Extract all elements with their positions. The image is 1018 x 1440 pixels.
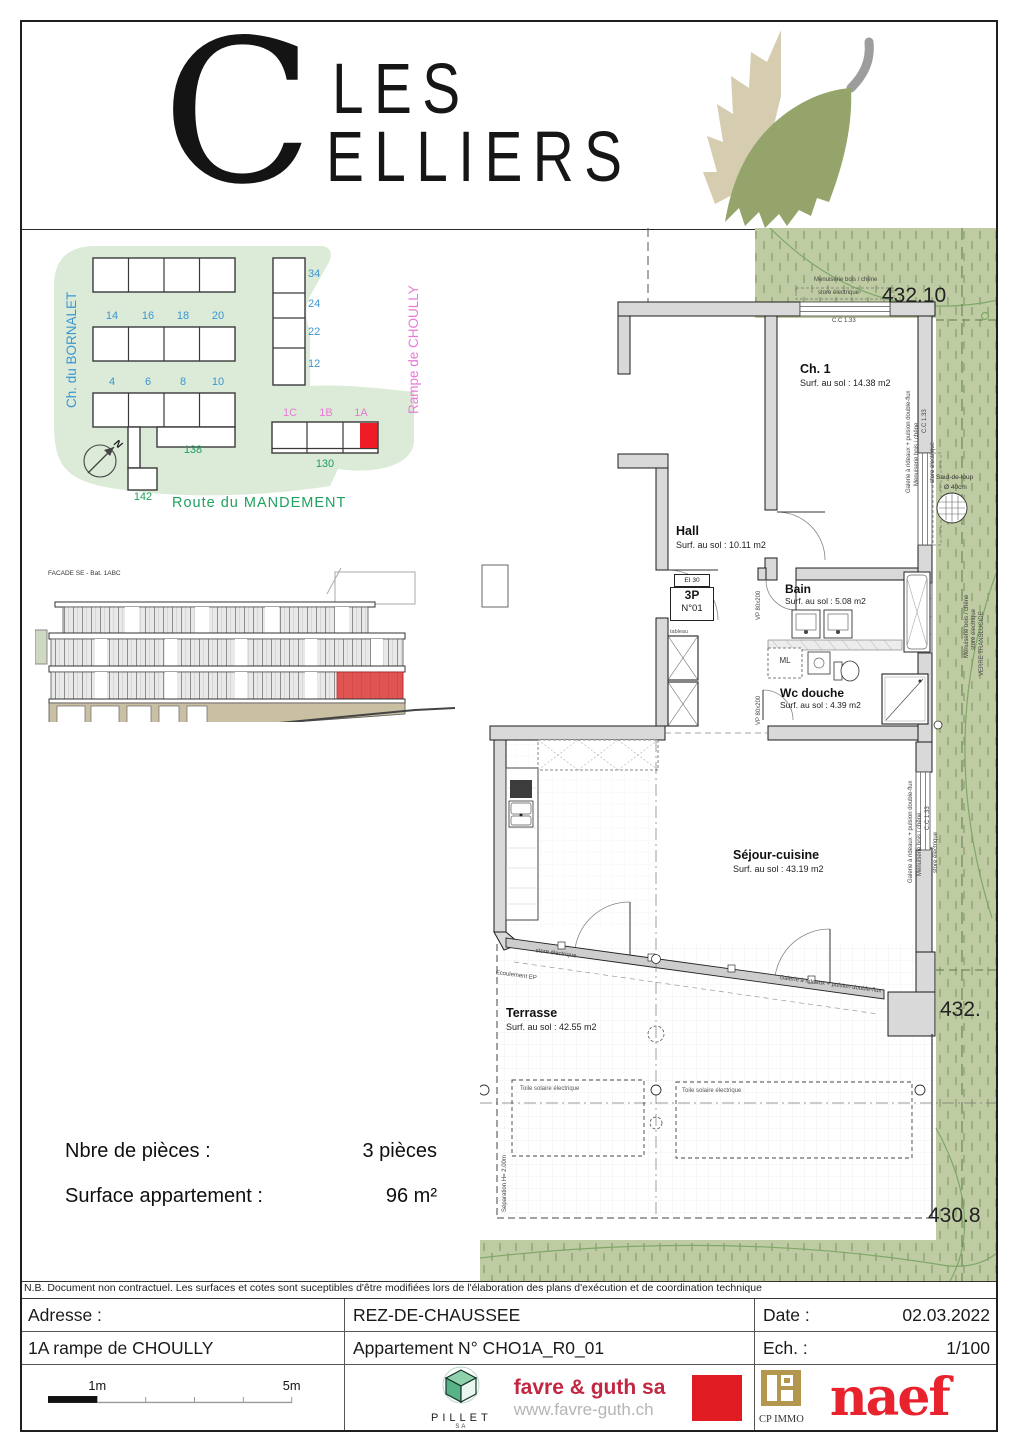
toile-solaire-label: Toile solaire électrique	[520, 1086, 579, 1092]
tableau-label: tableau	[670, 629, 688, 635]
menuiserie-label: Menuiserie bois / chêne	[917, 813, 923, 876]
floor-name: REZ-DE-CHAUSSEE	[353, 1305, 520, 1326]
room-area-wc: Surf. au sol : 4.39 m2	[780, 700, 861, 710]
ml-label: ML	[768, 656, 802, 665]
brand-line2: ELLIERS	[326, 122, 632, 193]
room-name-sejour: Séjour-cuisine	[733, 848, 819, 862]
cp-immo-logo: CP IMMO	[759, 1370, 804, 1426]
building-number: 8	[171, 376, 195, 388]
disclaimer: N.B. Document non contractuel. Les surfa…	[20, 1281, 998, 1298]
site-plan: Ch. du BORNALET Rampe de CHOULLY Route d…	[40, 238, 440, 528]
address-number-130: 130	[310, 458, 340, 470]
unit-label-1b: 1B	[314, 407, 338, 419]
saut-de-loup-label: Saut-de-loup	[936, 474, 973, 481]
building-number: 4	[100, 376, 124, 388]
cc-label: C.C 1.33	[832, 318, 856, 324]
pillet-logo: PILLET SA	[431, 1366, 492, 1430]
building-number: 24	[308, 298, 332, 310]
street-label-mandement: Route du MANDEMENT	[172, 495, 346, 511]
room-area-terrasse: Surf. au sol : 42.55 m2	[506, 1022, 597, 1032]
menuiserie-label: Menuiserie bois / chêne	[814, 277, 877, 283]
unit-label-1c: 1C	[278, 407, 302, 419]
apartment-number: N°01	[671, 603, 713, 615]
elevation-caption: FACADE SE - Bat. 1ABC	[48, 570, 121, 577]
surface-label: Surface appartement :	[65, 1185, 315, 1208]
building-number: 14	[100, 310, 124, 322]
scale-5m-label: 5m	[283, 1378, 301, 1393]
rooms-count-label: Nbre de pièces :	[65, 1140, 315, 1163]
toile-solaire-label: Toile solaire électrique	[682, 1088, 741, 1094]
entry-door-fire-rating: EI 30	[674, 574, 710, 587]
brand-line1: LES	[332, 54, 471, 125]
scale-bar: 1m 5m	[48, 1376, 344, 1420]
building-number: 6	[136, 376, 160, 388]
address-value: 1A rampe de CHOULLY	[28, 1338, 213, 1359]
pillet-name: PILLET	[431, 1413, 492, 1424]
vp-door-label: VP 80x200	[756, 591, 762, 620]
floor-plan: 432.10 432. 430.8 Ch. 1 Surf. au sol : 1…	[480, 228, 998, 1281]
scale-bar-cell: 1m 5m	[20, 1364, 345, 1432]
room-area-sejour: Surf. au sol : 43.19 m2	[733, 864, 824, 874]
elevation-drawing	[35, 562, 455, 722]
store-electrique-label: store électrique	[933, 832, 939, 873]
separation-label: Séparation H= 2.00m	[502, 1155, 508, 1212]
cc-label: C.C 1.33	[922, 409, 928, 433]
pillet-cube-icon	[439, 1366, 483, 1408]
building-number: 18	[171, 310, 195, 322]
apartment-tag: 3P N°01	[670, 587, 714, 621]
room-area-ch1: Surf. au sol : 14.38 m2	[800, 378, 891, 388]
favre-guth-url: www.favre-guth.ch	[514, 1400, 666, 1420]
red-square-logo	[692, 1375, 742, 1421]
level-marker-bottom: 430.8	[928, 1204, 981, 1228]
elevation-view: FACADE SE - Bat. 1ABC	[35, 562, 455, 722]
date-label: Date :	[763, 1305, 810, 1326]
apartment-type: 3P	[671, 588, 713, 603]
street-label-bornalet: Ch. du BORNALET	[64, 292, 79, 408]
menuiserie-label: Menuiserie bois / chêne	[964, 595, 970, 658]
favre-guth-name: favre & guth sa	[514, 1376, 666, 1400]
apartment-id: Appartement N° CHO1A_R0_01	[353, 1338, 604, 1359]
level-marker-right: 432.	[940, 998, 981, 1022]
header: C LES ELLIERS	[20, 20, 998, 230]
partner-logos-cell: PILLET SA favre & guth sa www.favre-guth…	[345, 1364, 755, 1432]
building-number: 20	[206, 310, 230, 322]
room-name-bain: Bain	[785, 582, 811, 596]
apartment-cell: Appartement N° CHO1A_R0_01	[345, 1332, 755, 1365]
logo-bar: 1m 5m PILLET SA favre & guth sa www.favr…	[20, 1364, 998, 1432]
menuiserie-label: Menuiserie bois / chêne	[914, 423, 920, 486]
naef-logo: naef	[830, 1372, 949, 1424]
brand-initial: C	[162, 34, 314, 192]
building-number: 22	[308, 326, 332, 338]
room-area-bain: Surf. au sol : 5.08 m2	[785, 596, 866, 606]
room-name-wc: Wc douche	[780, 686, 844, 700]
cp-immo-name: CP IMMO	[759, 1415, 804, 1426]
pillet-sa: SA	[431, 1424, 492, 1430]
date-value: 02.03.2022	[902, 1305, 990, 1326]
surface-value: 96 m²	[315, 1185, 437, 1208]
address-value-cell: 1A rampe de CHOULLY	[20, 1332, 345, 1365]
store-electrique-label: store électrique	[818, 290, 859, 296]
address-label-cell: Adresse :	[20, 1299, 345, 1332]
scale-cell: Ech. :1/100	[755, 1332, 998, 1365]
date-cell: Date :02.03.2022	[755, 1299, 998, 1332]
building-number: 34	[308, 268, 332, 280]
floor-plan-drawing	[480, 228, 998, 1281]
galerie-label: Galerie à rideaux + pulsion double-flux	[908, 780, 914, 883]
room-name-ch1: Ch. 1	[800, 362, 831, 376]
cp-immo-icon	[759, 1370, 803, 1410]
building-number: 10	[206, 376, 230, 388]
room-name-terrasse: Terrasse	[506, 1006, 557, 1020]
scale-1m-label: 1m	[88, 1378, 106, 1393]
agency-logos-cell: CP IMMO naef	[755, 1364, 998, 1432]
verre-translucide-label: VERRE TRANSLUCIDE	[979, 611, 985, 676]
rooms-count-value: 3 pièces	[315, 1140, 437, 1163]
vp-door-label: VP 80x200	[756, 696, 762, 725]
scale-label: Ech. :	[763, 1338, 808, 1359]
saut-de-loup-size: Ø 40cm	[944, 484, 967, 491]
street-label-choully: Rampe de CHOULLY	[406, 285, 421, 414]
favre-guth-logo: favre & guth sa www.favre-guth.ch	[514, 1376, 666, 1420]
scale-value: 1/100	[946, 1338, 990, 1359]
title-block: Adresse : REZ-DE-CHAUSSEE Date :02.03.20…	[20, 1298, 998, 1364]
rooms-count-row: Nbre de pièces : 3 pièces	[65, 1140, 437, 1163]
galerie-label: Galerie à rideaux + pulsion double-flux	[906, 390, 912, 493]
level-marker-top: 432.10	[882, 284, 946, 308]
leaf-logo-icon	[665, 26, 900, 231]
room-name-hall: Hall	[676, 524, 699, 538]
address-number-138: 138	[178, 444, 208, 456]
unit-label-1a: 1A	[349, 407, 373, 419]
address-number-142: 142	[128, 491, 158, 503]
floor-cell: REZ-DE-CHAUSSEE	[345, 1299, 755, 1332]
store-electrique-label: store électrique	[971, 609, 977, 650]
cc-label: C.C 1.33	[925, 806, 931, 830]
surface-row: Surface appartement : 96 m²	[65, 1185, 437, 1208]
building-number: 16	[136, 310, 160, 322]
apartment-summary: Nbre de pièces : 3 pièces Surface appart…	[65, 1140, 437, 1208]
address-label: Adresse :	[28, 1305, 102, 1326]
building-number: 12	[308, 358, 332, 370]
room-area-hall: Surf. au sol : 10.11 m2	[676, 540, 766, 550]
